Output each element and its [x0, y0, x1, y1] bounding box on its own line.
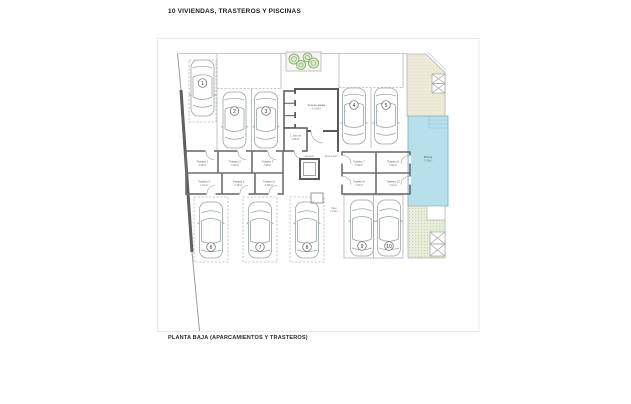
- access-room-area: 14.50m2: [312, 109, 322, 111]
- waste-room-label: C. basuras: [290, 135, 302, 138]
- floor-plan-sheet: 10 VIVIENDAS, TRASTEROS Y PISCINAS: [0, 0, 631, 404]
- trastero-area: 4.40m2: [231, 165, 239, 167]
- parking-number: 7: [259, 245, 262, 251]
- car-icon: [221, 92, 248, 148]
- trastero-label: Trastero 5: [233, 180, 245, 184]
- car-icon: [189, 60, 216, 116]
- trastero-label: Trastero 2: [229, 160, 241, 164]
- trastero-label: Trastero 4: [198, 180, 210, 184]
- parking-number: 3: [265, 109, 268, 115]
- parking-number: 1: [201, 81, 204, 87]
- trastero-label: Trastero 3: [262, 160, 274, 164]
- shaft: [311, 193, 323, 203]
- elevator: Ascensor: [300, 155, 319, 179]
- parking-number: 2: [233, 109, 236, 115]
- trastero-area: 2.60m2: [265, 185, 273, 187]
- trastero-area: 4.65m2: [199, 165, 207, 167]
- trastero-label: Trastero 6: [263, 180, 275, 184]
- trastero-area: 3.95m2: [264, 165, 272, 167]
- trastero-area: 3.10m2: [200, 185, 208, 187]
- utility-cells: [284, 91, 295, 128]
- parking-number: 5: [385, 103, 388, 109]
- hall-label: Zona común: [325, 156, 338, 158]
- parking-number: 10: [386, 244, 392, 250]
- parking-number: 6: [210, 245, 213, 251]
- waste-room-area: 1.80m2: [292, 139, 300, 141]
- skylight-icon: [432, 74, 445, 93]
- elevator-label: Ascensor: [305, 155, 315, 158]
- access-room-label: Acceso garaje: [308, 103, 326, 107]
- car-icon: [373, 88, 400, 144]
- car-icon: [341, 88, 368, 144]
- car-icon: [253, 92, 280, 148]
- trastero-label: Trastero 7: [353, 160, 365, 164]
- trastero-block-left: Trastero 1 4.65m2 Trastero 2 4.40m2 Tras…: [186, 150, 283, 195]
- garden-box-icon: [430, 232, 445, 256]
- pool-label: Piscina: [424, 155, 433, 159]
- passage-label: Paso: [331, 208, 337, 210]
- parking-number: 8: [306, 245, 309, 251]
- trastero-label: Trastero 1: [197, 160, 209, 164]
- trastero-area: 5.60m2: [389, 165, 397, 167]
- terrace-area: [407, 52, 447, 116]
- trastero-block-right: Trastero 7 5.85m2 Trastero 8 5.60m2 Tras…: [341, 152, 411, 194]
- planter: [286, 52, 321, 71]
- floor-plan-drawing: Piscina 17.68m2: [0, 0, 631, 404]
- pool-area: 17.68m2: [424, 161, 434, 163]
- trastero-area: 2.95m2: [235, 185, 243, 187]
- trastero-label: Trastero 8: [387, 160, 399, 164]
- parking-number: 9: [361, 244, 364, 250]
- garden-area: [408, 206, 445, 258]
- parking-number: 4: [353, 103, 356, 109]
- trastero-area: 4.10m2: [389, 185, 397, 187]
- passage-label: común: [331, 211, 339, 213]
- trastero-label: Trastero 9: [353, 180, 365, 184]
- trastero-area: 4.25m2: [355, 185, 363, 187]
- plan-caption: PLANTA BAJA (APARCAMIENTOS Y TRASTEROS): [168, 335, 308, 341]
- trastero-area: 5.85m2: [355, 165, 363, 167]
- pool: Piscina 17.68m2: [408, 116, 448, 206]
- trastero-label: Trastero 10: [386, 180, 400, 184]
